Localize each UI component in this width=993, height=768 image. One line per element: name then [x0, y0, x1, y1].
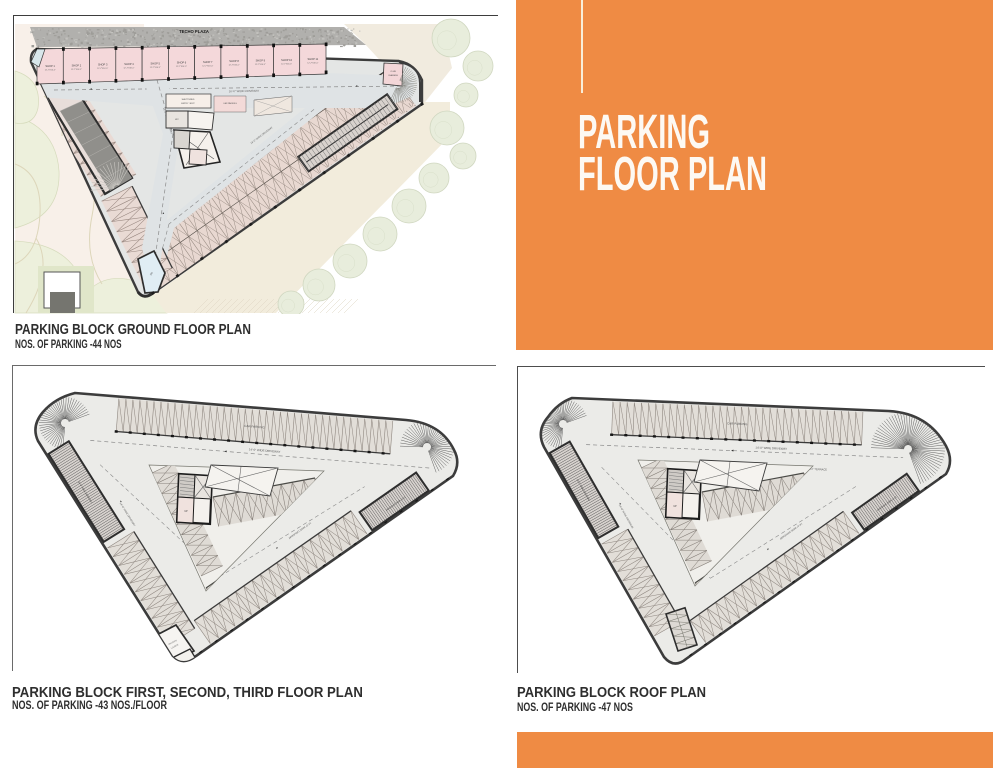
svg-text:12'-7″X16'-5″: 12'-7″X16'-5″ — [281, 63, 292, 65]
svg-text:SHOP 3: SHOP 3 — [98, 63, 108, 67]
svg-text:CHANGING: CHANGING — [388, 74, 398, 77]
svg-text:SHOP 7: SHOP 7 — [203, 60, 213, 64]
svg-text:16'-6″ WIDE DRIVEWAY: 16'-6″ WIDE DRIVEWAY — [229, 89, 260, 94]
svg-text:12'-7″X16'-5″: 12'-7″X16'-5″ — [71, 69, 82, 71]
svg-text:SHUTTERED: SHUTTERED — [182, 99, 195, 101]
svg-text:TECHO PLAZA: TECHO PLAZA — [179, 29, 209, 34]
svg-text:ENTRY / EXIT: ENTRY / EXIT — [181, 103, 195, 105]
svg-text:12'-7″X16'-5″: 12'-7″X16'-5″ — [97, 68, 108, 70]
svg-text:SHOP 4: SHOP 4 — [124, 62, 134, 66]
svg-text:12'-7″X16'-5″: 12'-7″X16'-5″ — [202, 65, 213, 67]
svg-text:12'-7″X16'-5″: 12'-7″X16'-5″ — [176, 66, 187, 68]
svg-text:12'-7″X16'-5″: 12'-7″X16'-5″ — [124, 67, 135, 69]
svg-text:SHOP 11: SHOP 11 — [308, 57, 319, 61]
svg-text:SHOP 10: SHOP 10 — [281, 58, 292, 62]
svg-text:SHOP 8: SHOP 8 — [229, 59, 239, 63]
svg-text:12'-7″X16'-5″: 12'-7″X16'-5″ — [150, 67, 161, 69]
svg-text:SHOP 5: SHOP 5 — [150, 61, 160, 65]
svg-text:12'-7″X16'-5″: 12'-7″X16'-5″ — [229, 65, 240, 67]
svg-text:12'-7″X16'-5″: 12'-7″X16'-5″ — [45, 70, 56, 72]
svg-text:SHOP 9: SHOP 9 — [256, 59, 266, 63]
svg-text:WC: WC — [175, 119, 179, 121]
svg-text:CLUB: CLUB — [390, 71, 396, 73]
svg-text:SHOP 2: SHOP 2 — [72, 63, 82, 67]
svg-text:12'-7″X16'-5″: 12'-7″X16'-5″ — [307, 63, 318, 65]
svg-text:UP: UP — [673, 505, 677, 508]
svg-text:CAR PARKING: CAR PARKING — [223, 102, 237, 105]
svg-text:SHOP 6: SHOP 6 — [177, 61, 187, 65]
svg-text:12'-7″X16'-5″: 12'-7″X16'-5″ — [255, 64, 266, 66]
svg-text:UP: UP — [184, 510, 188, 513]
svg-text:SHOP 1: SHOP 1 — [45, 64, 55, 68]
